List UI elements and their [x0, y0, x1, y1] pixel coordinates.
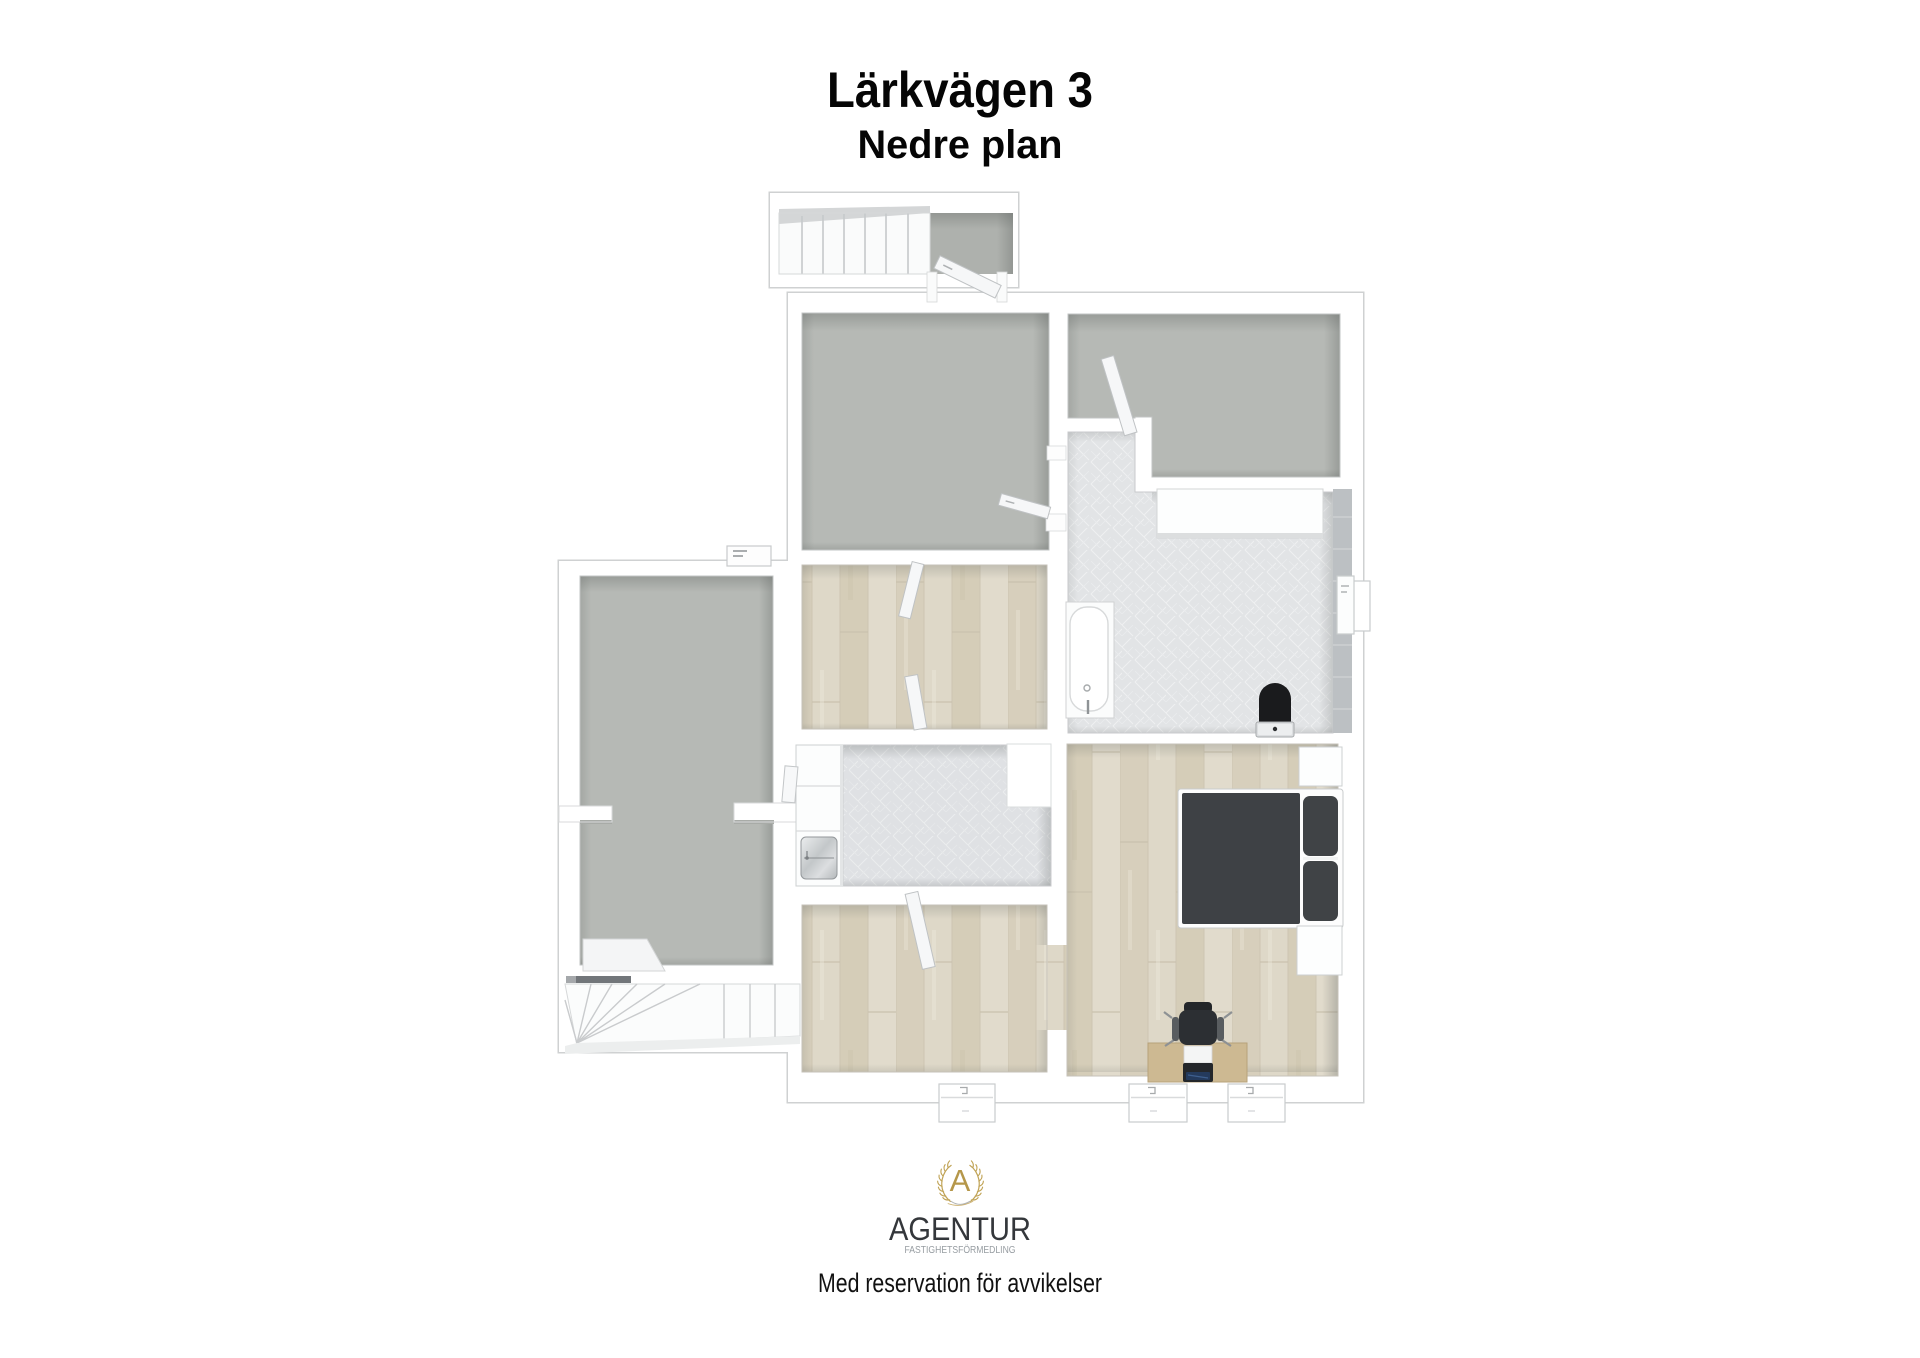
svg-text:AGENTUR: AGENTUR — [889, 1211, 1031, 1247]
svg-text:A: A — [950, 1163, 971, 1198]
svg-text:Nedre plan: Nedre plan — [858, 123, 1063, 167]
svg-text:Lärkvägen 3: Lärkvägen 3 — [827, 62, 1093, 118]
svg-text:FASTIGHETSFÖRMEDLING: FASTIGHETSFÖRMEDLING — [905, 1244, 1016, 1256]
svg-text:Med reservation för avvikelser: Med reservation för avvikelser — [818, 1268, 1102, 1298]
